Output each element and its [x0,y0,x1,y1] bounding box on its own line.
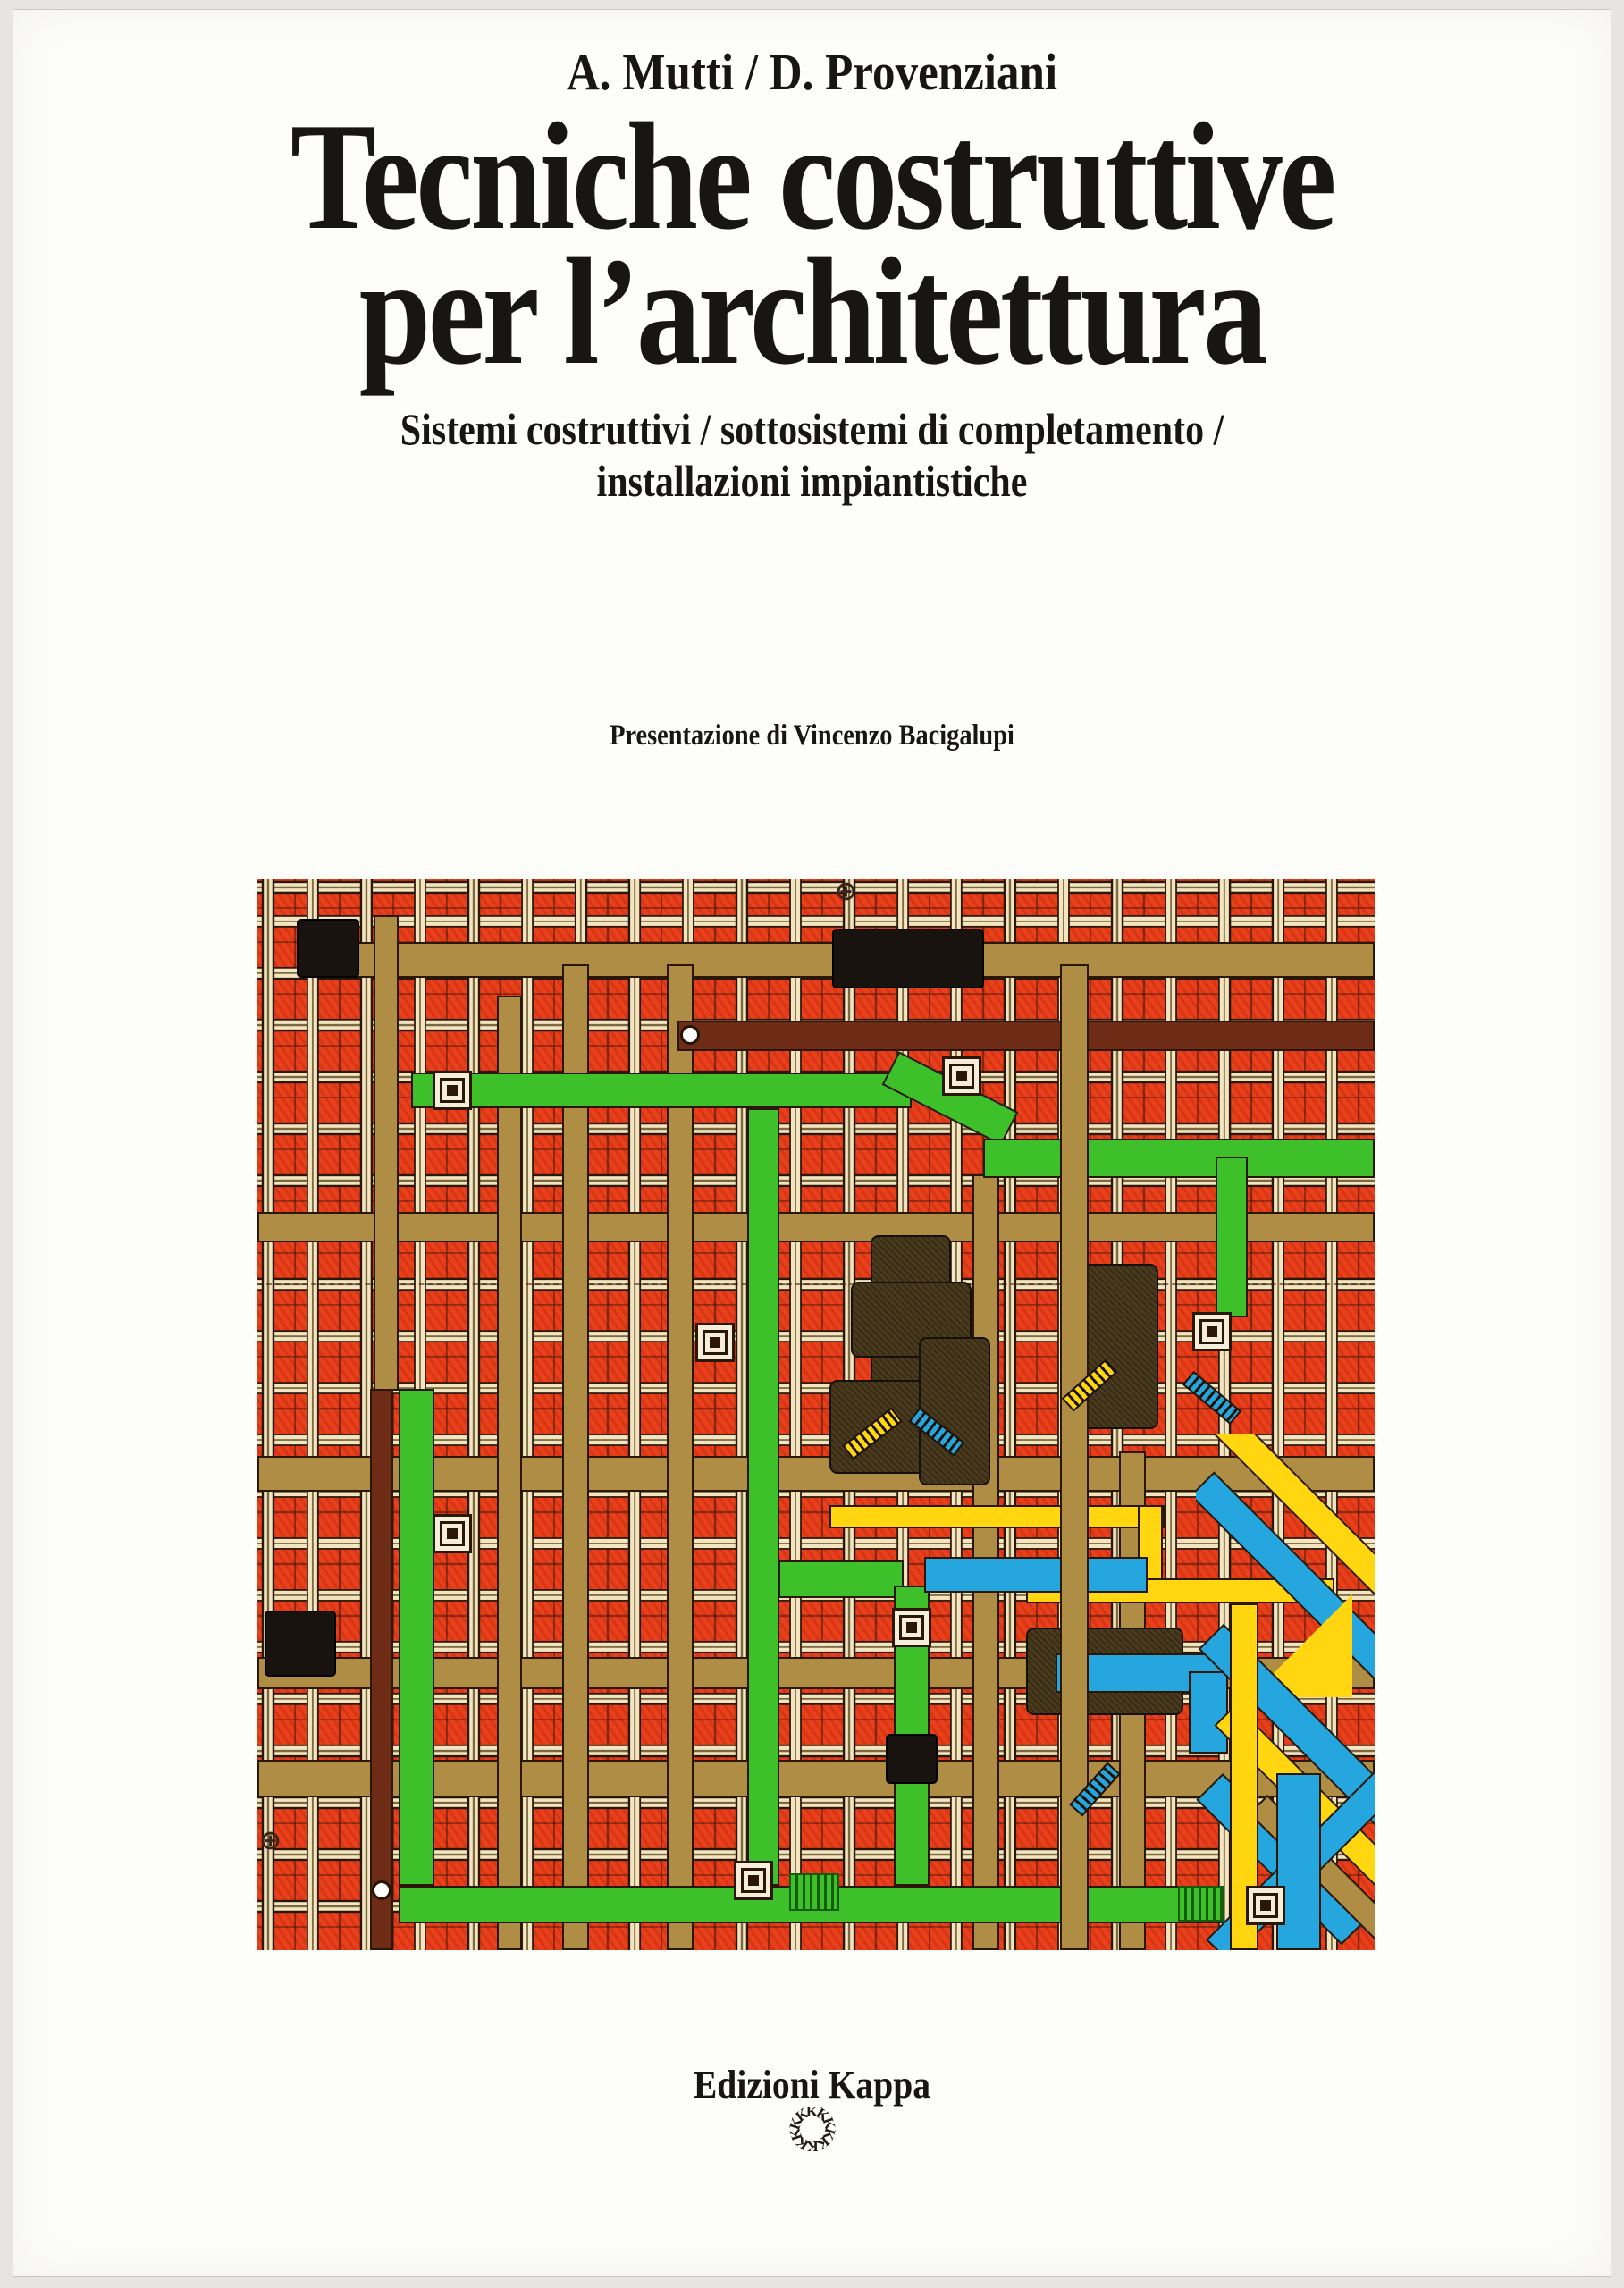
junction-dot [680,1025,700,1045]
duct-olive-vertical [497,996,522,1950]
book-title: Tecniche costruttive per l’architettura [141,110,1483,381]
column-black [886,1734,938,1784]
publisher-line: Edizioni Kappa [93,2062,1530,2107]
duct-green-horizontal [983,1139,1375,1178]
cover-illustration: ⊕ ⊕ [257,879,1375,1950]
registration-mark: ⊕ [259,1825,282,1856]
strip-maroon-vertical [370,1389,393,1950]
pipe-yellow [829,1505,1165,1528]
junction-dot [372,1880,391,1900]
duct-green-vertical [1216,1157,1248,1317]
subtitle-line-1: Sistemi costruttivi / sottosistemi di co… [141,403,1483,455]
access-target-mark [433,1514,472,1553]
title-line-1: Tecniche costruttive [141,110,1483,245]
flex-coupling-green [789,1873,839,1911]
registration-mark: ⊕ [835,879,857,907]
column-black [832,929,984,988]
duct-olive-vertical [374,915,399,1391]
subtitle: Sistemi costruttivi / sottosistemi di co… [141,403,1483,507]
flex-coupling-green [1178,1886,1224,1922]
flex-connector-blue [1182,1371,1241,1425]
duct-olive-horizontal [257,1212,1375,1242]
column-black [265,1611,336,1677]
book-cover: A. Mutti / D. Provenziani Tecniche costr… [13,9,1611,2277]
axis-dashed-line [257,1283,1375,1285]
duct-olive-vertical [667,964,694,1950]
access-target-mark [1192,1312,1232,1351]
duct-green-horizontal [411,1072,912,1108]
subtitle-line-2: installazioni impiantistiche [141,455,1483,507]
duct-green-vertical [747,1108,779,1886]
publisher-logo: K K K K K K K K K K [787,2104,837,2154]
access-target-mark [433,1071,472,1110]
column-black [297,919,359,978]
duct-olive-vertical [562,964,589,1950]
access-target-mark [695,1323,735,1362]
title-line-2: per l’architettura [141,245,1483,380]
duct-green-spur [778,1560,904,1598]
presentation-line: Presentazione di Vincenzo Bacigalupi [125,719,1499,753]
access-target-mark [892,1608,931,1647]
access-target-mark [734,1861,773,1900]
scan-background: A. Mutti / D. Provenziani Tecniche costr… [0,0,1624,2288]
duct-green-vertical [399,1389,434,1886]
pipe-blue [924,1557,1148,1593]
access-target-mark [942,1056,981,1096]
equipment-unit [919,1337,990,1485]
strip-maroon-horizontal [677,1021,1375,1051]
access-target-mark [1246,1886,1285,1925]
